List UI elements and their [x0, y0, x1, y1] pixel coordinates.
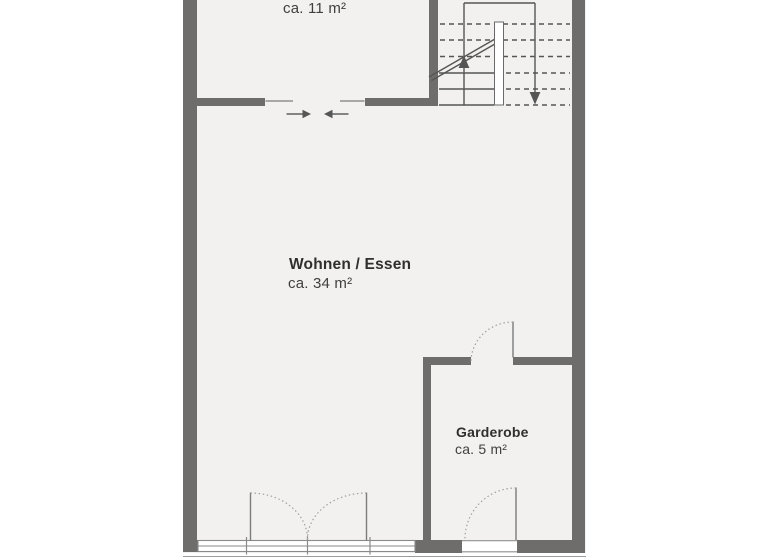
terrace-door-swing-left [251, 493, 308, 540]
stair-solid-treads [439, 73, 494, 105]
garderobe-door-swing [471, 322, 513, 362]
terrace-double-door [251, 493, 367, 541]
staircase [429, 3, 570, 105]
terrace-door-swing-right [307, 493, 366, 540]
garderobe-door [471, 322, 513, 363]
plan-linework [0, 0, 768, 560]
room-label-living: Wohnen / Essen [289, 256, 411, 273]
room-area-living: ca. 34 m² [288, 276, 352, 293]
stair-handrail [495, 22, 504, 105]
room-area-top: ca. 11 m² [283, 1, 346, 18]
passage-arrows [287, 110, 349, 118]
entrance-door-swing [465, 488, 516, 540]
entrance-door [462, 488, 517, 554]
window-front [198, 537, 415, 555]
room-area-garderobe: ca. 5 m² [455, 442, 507, 457]
floorplan-canvas: ca. 11 m² Wohnen / Essen ca. 34 m² Garde… [0, 0, 768, 560]
stair-down-arrow [530, 92, 541, 105]
room-label-garderobe: Garderobe [456, 425, 529, 440]
